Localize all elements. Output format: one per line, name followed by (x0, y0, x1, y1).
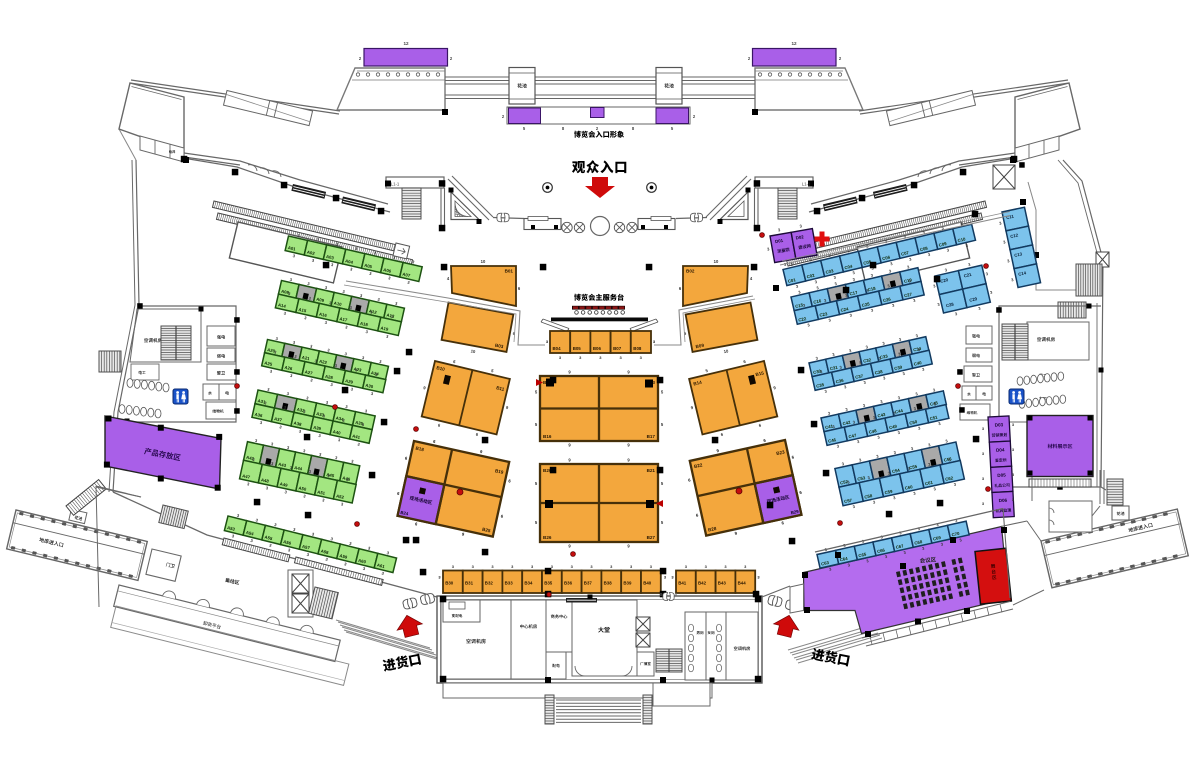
svg-text:10: 10 (481, 259, 486, 264)
svg-text:12: 12 (403, 41, 409, 46)
svg-text:B04: B04 (553, 346, 562, 351)
svg-text:D06: D06 (999, 498, 1008, 503)
svg-text:D03: D03 (995, 422, 1004, 427)
svg-text:B43: B43 (718, 581, 727, 586)
svg-text:B16: B16 (543, 434, 552, 439)
svg-text:B02: B02 (686, 269, 695, 274)
svg-text:B26: B26 (543, 535, 552, 540)
svg-text:B05: B05 (573, 346, 582, 351)
svg-text:B06: B06 (593, 346, 602, 351)
svg-text:B27: B27 (647, 535, 656, 540)
svg-text:B35: B35 (544, 581, 553, 586)
svg-text:B38: B38 (604, 581, 613, 586)
svg-text:L1-1: L1-1 (391, 182, 400, 187)
svg-text:D05: D05 (997, 473, 1006, 478)
svg-text:B34: B34 (524, 581, 533, 586)
svg-text:10: 10 (714, 259, 719, 264)
svg-text:B37: B37 (584, 581, 593, 586)
svg-text:B30: B30 (445, 581, 454, 586)
svg-text:12: 12 (791, 41, 797, 46)
svg-text:B39: B39 (623, 581, 632, 586)
svg-text:B08: B08 (633, 346, 642, 351)
svg-text:B36: B36 (564, 581, 573, 586)
svg-text:L1-1: L1-1 (802, 182, 811, 187)
svg-text:B17: B17 (647, 434, 656, 439)
svg-text:B40: B40 (643, 581, 652, 586)
svg-text:D04: D04 (996, 447, 1005, 452)
svg-text:B32: B32 (485, 581, 494, 586)
svg-text:B31: B31 (465, 581, 474, 586)
svg-text:B33: B33 (505, 581, 514, 586)
svg-text:B21: B21 (647, 468, 656, 473)
svg-text:B41: B41 (678, 581, 687, 586)
svg-text:B07: B07 (613, 346, 622, 351)
svg-text:B44: B44 (738, 581, 747, 586)
svg-text:B01: B01 (505, 269, 514, 274)
svg-text:B42: B42 (698, 581, 707, 586)
